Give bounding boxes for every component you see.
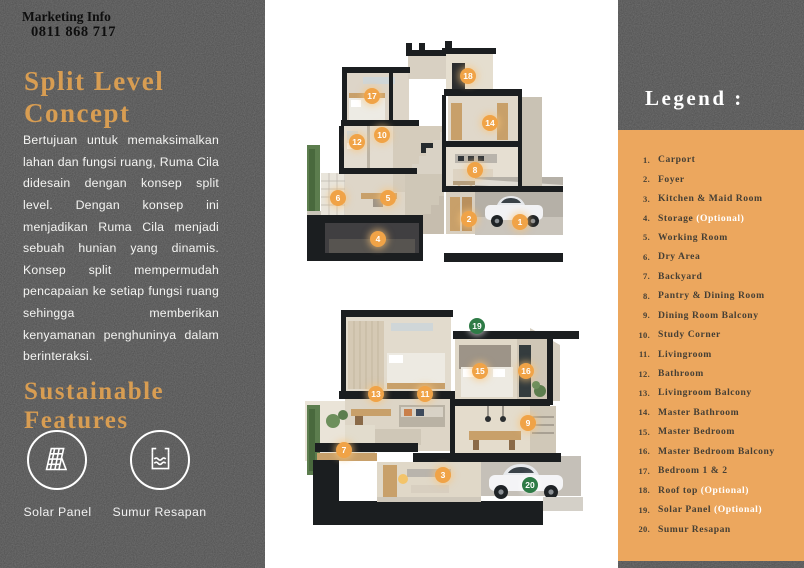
legend-item-label: Bathroom bbox=[658, 368, 704, 379]
legend-item-number: 19. bbox=[624, 505, 650, 515]
room-marker: 16 bbox=[518, 363, 534, 379]
room-marker: 14 bbox=[482, 115, 498, 131]
legend-item: 14. Master Bathroom bbox=[624, 403, 800, 422]
legend-item-label: Master Bathroom bbox=[658, 407, 739, 418]
legend-item: 13. Livingroom Balcony bbox=[624, 383, 800, 402]
legend-item-optional: (Optional) bbox=[693, 213, 744, 224]
legend-item-label: Carport bbox=[658, 154, 695, 165]
legend-item: 18. Roof top (Optional) bbox=[624, 480, 800, 499]
legend-item-label: Roof top bbox=[658, 485, 698, 496]
legend-item-number: 17. bbox=[624, 466, 650, 476]
legend-item: 16. Master Bedroom Balcony bbox=[624, 442, 800, 461]
legend-item-number: 1. bbox=[624, 155, 650, 165]
floor-plan-section-top: 1718141210865214 bbox=[305, 27, 581, 264]
legend-item: 9. Dining Room Balcony bbox=[624, 306, 800, 325]
legend-item-number: 12. bbox=[624, 369, 650, 379]
room-marker: 20 bbox=[522, 477, 538, 493]
legend-item-label: Master Bedroom Balcony bbox=[658, 446, 775, 457]
legend-item-number: 16. bbox=[624, 446, 650, 456]
legend-item-label: Dining Room Balcony bbox=[658, 310, 759, 321]
legend-item: 2. Foyer bbox=[624, 169, 800, 188]
legend-item-number: 14. bbox=[624, 407, 650, 417]
legend-item-number: 4. bbox=[624, 213, 650, 223]
right-panel: Legend : 1. Carport 2. Foyer 3. Kitchen … bbox=[618, 0, 804, 568]
legend-item-number: 3. bbox=[624, 194, 650, 204]
legend-item: 3. Kitchen & Maid Room bbox=[624, 189, 800, 208]
floor-plan-section-bottom: 191516131197320 bbox=[303, 305, 585, 527]
legend-item: 15. Master Bedroom bbox=[624, 422, 800, 441]
floor-plan-top-image bbox=[305, 27, 581, 264]
legend-item-optional: (Optional) bbox=[698, 485, 749, 496]
floor-plan-bottom-image bbox=[303, 305, 585, 527]
sustainable-features-title: Sustainable Features bbox=[24, 377, 214, 436]
infiltration-well-label: Sumur Resapan bbox=[102, 505, 217, 519]
room-marker: 4 bbox=[370, 231, 386, 247]
marketing-info-label: Marketing Info bbox=[22, 10, 116, 25]
brochure-page: Marketing Info 0811 868 717 Split Level … bbox=[0, 0, 804, 568]
legend-item-label: Storage bbox=[658, 213, 693, 224]
room-marker: 6 bbox=[330, 190, 346, 206]
left-panel: Marketing Info 0811 868 717 Split Level … bbox=[0, 0, 265, 568]
legend-item: 7. Backyard bbox=[624, 267, 800, 286]
room-marker: 5 bbox=[380, 190, 396, 206]
legend-panel: 1. Carport 2. Foyer 3. Kitchen & Maid Ro… bbox=[618, 130, 804, 561]
legend-item-label: Study Corner bbox=[658, 329, 721, 340]
legend-item-number: 7. bbox=[624, 271, 650, 281]
room-marker: 10 bbox=[374, 127, 390, 143]
legend-item: 11. Livingroom bbox=[624, 344, 800, 363]
legend-item-label: Working Room bbox=[658, 232, 728, 243]
legend-item: 10. Study Corner bbox=[624, 325, 800, 344]
legend-item: 17. Bedroom 1 & 2 bbox=[624, 461, 800, 480]
room-marker: 3 bbox=[435, 467, 451, 483]
legend-item-number: 5. bbox=[624, 232, 650, 242]
legend-item-optional: (Optional) bbox=[711, 504, 762, 515]
room-marker: 11 bbox=[417, 386, 433, 402]
marketing-info: Marketing Info 0811 868 717 bbox=[22, 10, 116, 41]
legend-item: 5. Working Room bbox=[624, 228, 800, 247]
legend-item-number: 15. bbox=[624, 427, 650, 437]
room-marker: 7 bbox=[336, 442, 352, 458]
legend-list: 1. Carport 2. Foyer 3. Kitchen & Maid Ro… bbox=[624, 150, 800, 539]
legend-item: 19. Solar Panel (Optional) bbox=[624, 500, 800, 519]
legend-item: 8. Pantry & Dining Room bbox=[624, 286, 800, 305]
legend-title: Legend : bbox=[645, 86, 744, 111]
legend-item-number: 9. bbox=[624, 310, 650, 320]
legend-item-number: 18. bbox=[624, 485, 650, 495]
room-marker: 19 bbox=[469, 318, 485, 334]
solar-panel-label: Solar Panel bbox=[10, 505, 105, 519]
legend-item-number: 10. bbox=[624, 330, 650, 340]
legend-item-label: Backyard bbox=[658, 271, 702, 282]
room-marker: 15 bbox=[472, 363, 488, 379]
room-marker: 12 bbox=[349, 134, 365, 150]
room-marker: 8 bbox=[467, 162, 483, 178]
concept-description: Bertujuan untuk memaksimalkan lahan dan … bbox=[23, 130, 219, 368]
legend-item-label: Foyer bbox=[658, 174, 685, 185]
legend-item: 1. Carport bbox=[624, 150, 800, 169]
room-marker: 1 bbox=[512, 214, 528, 230]
legend-item: 20. Sumur Resapan bbox=[624, 519, 800, 538]
legend-item-number: 6. bbox=[624, 252, 650, 262]
legend-item-number: 11. bbox=[624, 349, 650, 359]
legend-item-number: 8. bbox=[624, 291, 650, 301]
page-title: Split Level Concept bbox=[24, 66, 229, 130]
legend-item-label: Sumur Resapan bbox=[658, 524, 731, 535]
legend-item-number: 2. bbox=[624, 174, 650, 184]
legend-item: 6. Dry Area bbox=[624, 247, 800, 266]
legend-item-label: Bedroom 1 & 2 bbox=[658, 465, 728, 476]
legend-item-label: Solar Panel bbox=[658, 504, 711, 515]
legend-item-label: Livingroom bbox=[658, 349, 712, 360]
legend-item-number: 20. bbox=[624, 524, 650, 534]
legend-item-label: Livingroom Balcony bbox=[658, 387, 752, 398]
room-marker: 2 bbox=[461, 211, 477, 227]
solar-panel-icon bbox=[27, 430, 87, 490]
legend-item: 4. Storage (Optional) bbox=[624, 208, 800, 227]
room-marker: 18 bbox=[460, 68, 476, 84]
legend-item-label: Pantry & Dining Room bbox=[658, 290, 765, 301]
legend-item-label: Kitchen & Maid Room bbox=[658, 193, 763, 204]
legend-item-number: 13. bbox=[624, 388, 650, 398]
room-marker: 9 bbox=[520, 415, 536, 431]
room-marker: 17 bbox=[364, 88, 380, 104]
legend-item: 12. Bathroom bbox=[624, 364, 800, 383]
infiltration-well-icon bbox=[130, 430, 190, 490]
legend-item-label: Master Bedroom bbox=[658, 426, 735, 437]
room-marker: 13 bbox=[368, 386, 384, 402]
marketing-phone: 0811 868 717 bbox=[31, 25, 116, 41]
legend-item-label: Dry Area bbox=[658, 251, 700, 262]
